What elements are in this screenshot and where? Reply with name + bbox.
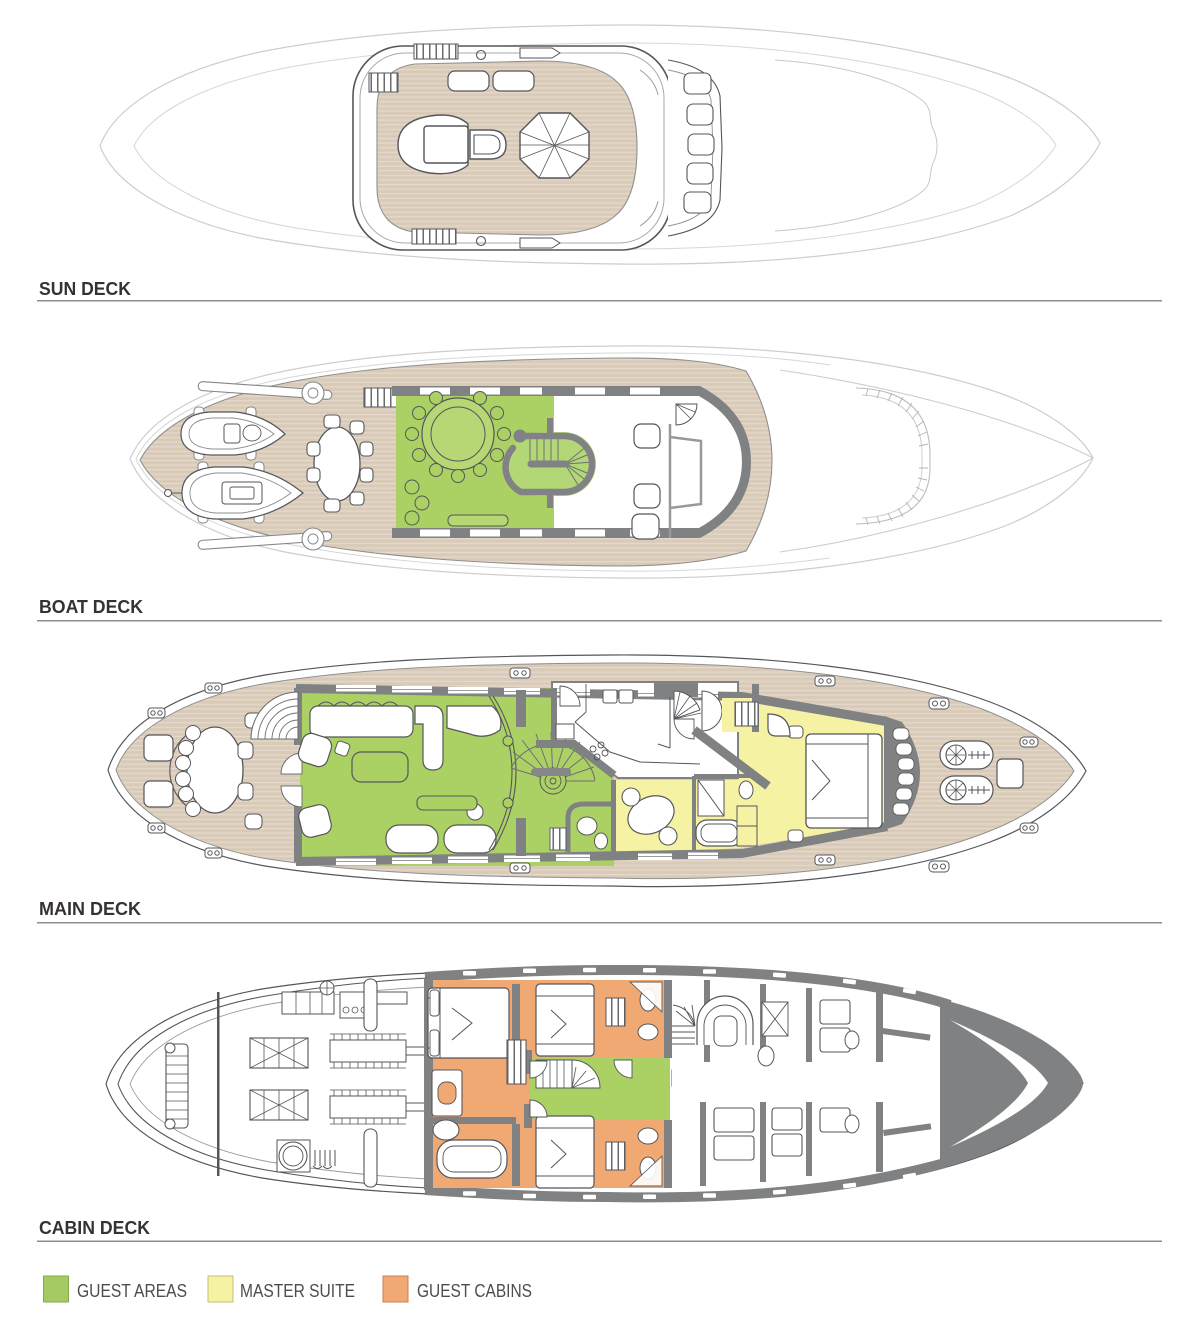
svg-text:MASTER SUITE: MASTER SUITE xyxy=(240,1280,355,1301)
svg-text:CABIN DECK: CABIN DECK xyxy=(39,1218,150,1238)
svg-text:GUEST CABINS: GUEST CABINS xyxy=(417,1280,532,1301)
svg-text:MAIN DECK: MAIN DECK xyxy=(39,899,141,919)
svg-text:SUN DECK: SUN DECK xyxy=(39,279,131,299)
svg-text:BOAT DECK: BOAT DECK xyxy=(39,597,143,617)
svg-text:GUEST AREAS: GUEST AREAS xyxy=(77,1280,187,1301)
